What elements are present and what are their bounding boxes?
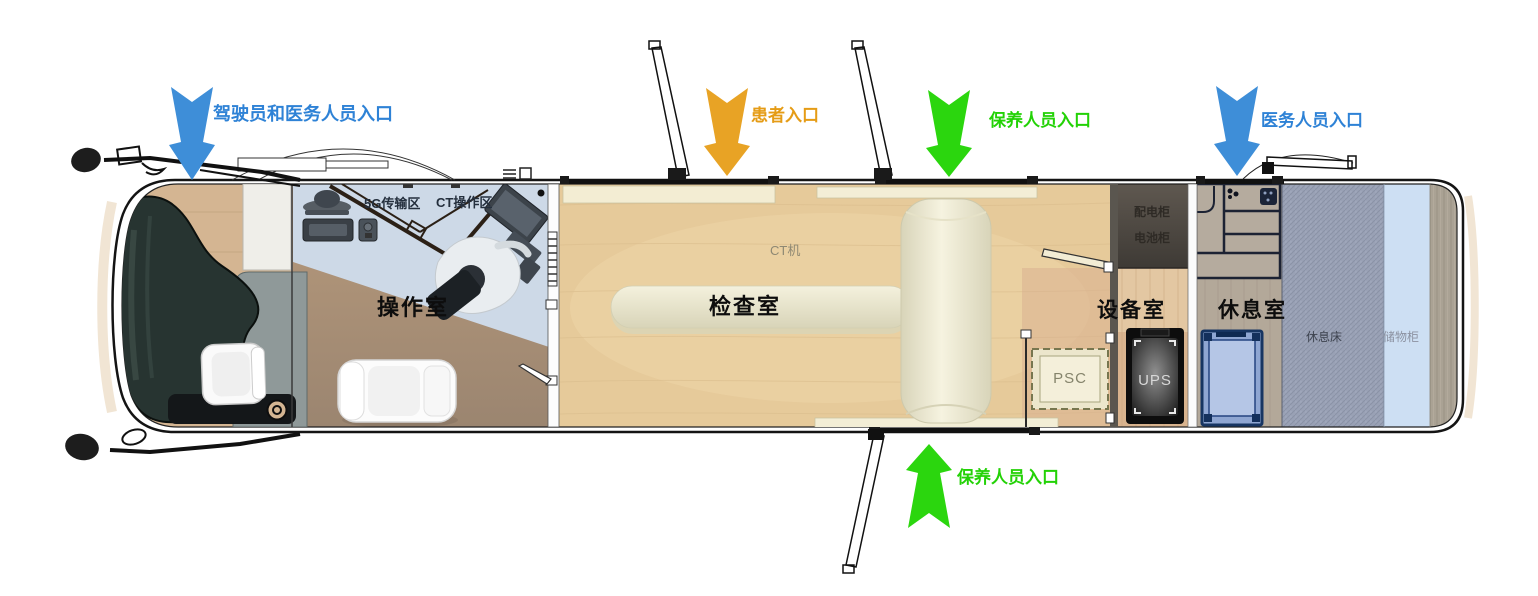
zone-label-ct-machine: CT机: [770, 244, 800, 257]
room-label-examination: 检查室: [709, 296, 781, 318]
driver-seat: [201, 343, 266, 405]
zone-label-storage-cabinet: 储物柜: [1383, 331, 1419, 343]
entrance-label-medical: 医务人员入口: [1261, 112, 1363, 129]
recliner-sofa: [338, 360, 458, 428]
room-label-rest: 休息室: [1218, 300, 1287, 321]
arrow-patient-entrance: [704, 88, 750, 176]
mobile-ct-vehicle-floorplan: 驾驶员和医务人员入口 患者入口 保养人员入口 医务人员入口 保养人员入口 操作室…: [0, 0, 1538, 596]
front-cabinet: [243, 184, 291, 270]
sliding-door-track: [548, 232, 557, 286]
entrance-label-maintenance-top: 保养人员入口: [989, 112, 1091, 129]
entrance-label-driver-medical: 驾驶员和医务人员入口: [213, 105, 393, 123]
console-screen: [309, 224, 347, 236]
arrow-maintenance-top-entrance: [926, 90, 972, 177]
zone-label-power-cabinet: 配电柜: [1112, 206, 1192, 218]
sanitizer-unit: [359, 219, 377, 241]
zone-label-psc: PSC: [1032, 371, 1108, 386]
floor-socket-icon: [268, 401, 287, 420]
maintenance-top-door-panel: [855, 47, 892, 177]
entrance-label-patient: 患者入口: [751, 107, 819, 124]
entry-steps: [1196, 184, 1280, 278]
ct-gantry: [901, 199, 991, 423]
power-battery-cabinet: [1112, 184, 1192, 268]
folding-cot: [1202, 331, 1262, 425]
zone-label-rest-bed: 休息床: [1306, 331, 1342, 343]
zone-label-5g-transmission: 5G传输区: [364, 197, 420, 210]
patient-door-step: [563, 186, 775, 203]
arrow-maintenance-bottom-entrance: [906, 444, 952, 528]
patient-door-panel: [652, 47, 689, 177]
zone-label-battery-cabinet: 电池柜: [1112, 232, 1192, 244]
zone-label-ups: UPS: [1126, 373, 1184, 388]
entrance-label-maintenance-bottom: 保养人员入口: [957, 469, 1059, 486]
arrow-medical-entrance: [1214, 86, 1260, 176]
room-label-operation: 操作室: [377, 297, 449, 319]
maintenance-bottom-door-panel: [846, 434, 884, 567]
room-label-equipment: 设备室: [1097, 300, 1166, 321]
zone-label-ct-console: CT操作区: [436, 196, 492, 209]
